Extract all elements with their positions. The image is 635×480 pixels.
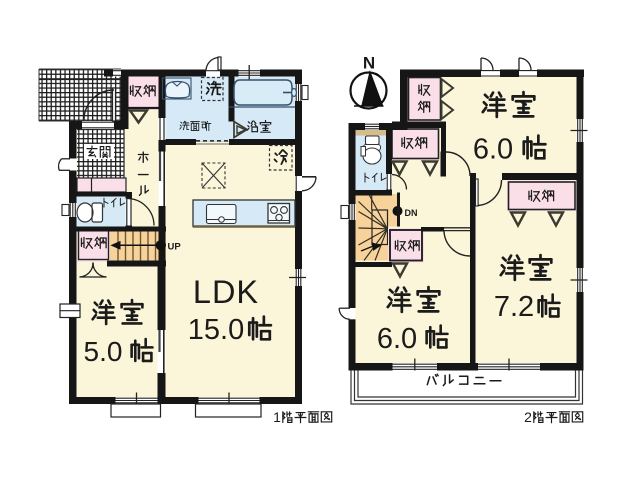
svg-text:7.2: 7.2 xyxy=(494,291,534,323)
svg-text:DN: DN xyxy=(405,208,418,218)
svg-text:1: 1 xyxy=(273,409,281,425)
svg-text:UP: UP xyxy=(168,241,182,252)
svg-text:N: N xyxy=(363,54,375,73)
svg-text:5.0: 5.0 xyxy=(84,336,123,367)
svg-text:6.0: 6.0 xyxy=(377,323,417,355)
svg-text:2: 2 xyxy=(524,409,532,425)
svg-text:6.0: 6.0 xyxy=(473,134,513,166)
svg-text:15.0: 15.0 xyxy=(188,314,244,346)
svg-text:LDK: LDK xyxy=(193,274,259,310)
